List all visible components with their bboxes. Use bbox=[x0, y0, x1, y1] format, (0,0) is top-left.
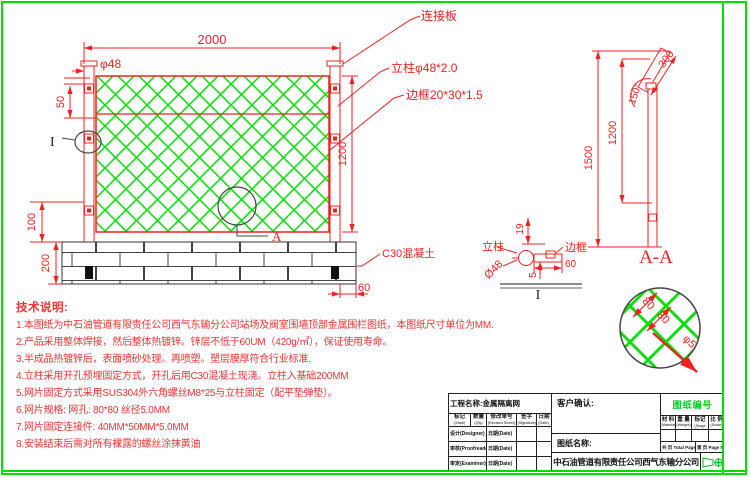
proofreader-label: 审核(Proofreader) bbox=[449, 442, 486, 456]
left-anchor bbox=[85, 266, 93, 279]
designer-date-label: 日期(Date) bbox=[487, 427, 516, 441]
dim-1200-front-label: 1200 bbox=[337, 142, 349, 166]
section-aa-label: A-A bbox=[639, 247, 673, 268]
side-view: 1500 1200 300 150° A-A bbox=[583, 48, 677, 268]
note-line: 5.网片固定方式采用SUS304外六角螺丝M8*25与立柱固定（配平垫弹垫）。 bbox=[16, 385, 476, 402]
page-no-label: 第 页 Page No. bbox=[696, 442, 724, 453]
left-post-cap bbox=[81, 61, 97, 66]
note-line: 6.网片规格: 网孔: 80*80 丝径5.0MM bbox=[16, 402, 476, 419]
detail-i-post-label: 立柱 bbox=[482, 239, 504, 253]
sheet-border-inner-bottom bbox=[1, 470, 747, 472]
front-view: 2000 φ48 50 100 200 bbox=[26, 8, 483, 298]
detail-i-5-label: 5 bbox=[528, 272, 539, 278]
label-post: 立柱φ48*2.0 bbox=[391, 60, 458, 75]
label-connector-plate: 连接板 bbox=[421, 8, 457, 23]
detail-i-frame-label: 边框 bbox=[565, 241, 587, 254]
dim-200-label: 200 bbox=[40, 254, 52, 272]
dim-1200-side-label: 1200 bbox=[607, 121, 619, 145]
right-anchor bbox=[331, 266, 339, 279]
title-block: 工程名称:金属隔离网 客户确认: 图纸编号 标记(Mark) 数量(Qty) 修… bbox=[448, 393, 723, 471]
sheet-border-inner-right bbox=[722, 1, 724, 475]
detail-i-dims bbox=[497, 218, 563, 279]
drawing-name-label: 图纸名称: bbox=[552, 434, 660, 449]
label-frame: 边框20*30*1.5 bbox=[406, 88, 483, 102]
project-name: 工程名称:金属隔离网 bbox=[449, 394, 551, 414]
designer-label: 设计(Designer) bbox=[449, 427, 486, 441]
mesh-panel bbox=[96, 76, 329, 232]
side-joint-plate bbox=[646, 83, 656, 89]
customer-confirm-label: 客户确认: bbox=[552, 394, 660, 409]
detail-i-section-label: I bbox=[536, 288, 541, 303]
examiner-label: 审定(Examiner) bbox=[449, 457, 486, 471]
detail-a-label: A bbox=[272, 229, 282, 244]
technical-notes: 技术说明: 1.本图纸为中石油管道有限责任公司西气东输分公司站场及阀室围墙顶部金… bbox=[16, 299, 476, 453]
detail-i-diameter-label: Ø48 bbox=[482, 258, 505, 281]
note-line: 8.安装结束后需对所有裸露的螺丝涂抹黄油 bbox=[16, 436, 476, 453]
mesh-detail: 80 80 φ5 bbox=[620, 288, 700, 372]
examiner-date-label: 日期(Date) bbox=[487, 457, 516, 471]
dim-50-label: 50 bbox=[55, 96, 67, 108]
dim-angle-label: 150° bbox=[627, 83, 644, 106]
dim-100 bbox=[30, 202, 84, 242]
side-post bbox=[648, 86, 657, 247]
total-pages-label: 共 页 Total Pages bbox=[661, 442, 695, 453]
detail-i-leader bbox=[62, 138, 75, 140]
side-dims bbox=[592, 51, 676, 247]
side-lower-plate bbox=[649, 214, 657, 221]
dim-phi48-label: φ48 bbox=[100, 57, 121, 71]
mesh-detail-circle bbox=[620, 288, 700, 368]
detail-i-label: I bbox=[50, 135, 55, 150]
detail-i-post-section bbox=[519, 251, 534, 266]
concrete-base bbox=[62, 242, 356, 284]
left-post bbox=[84, 66, 94, 266]
note-line: 4.立柱采用开孔预埋固定方式，开孔后用C30混凝土现浇。立柱入基础200MM bbox=[16, 368, 476, 385]
dim-1500-label: 1500 bbox=[583, 146, 595, 170]
dim-2000-label: 2000 bbox=[198, 32, 227, 47]
proofreader-date-label: 日期(Date) bbox=[487, 442, 516, 456]
drawing-number-label: 图纸编号 bbox=[661, 394, 724, 416]
dim-60-label: 60 bbox=[358, 282, 370, 294]
drawing-sheet: 2000 φ48 50 100 200 bbox=[0, 0, 750, 478]
note-line: 7.网片固定连接件: 40MM*50MM*5.0MM bbox=[16, 419, 476, 436]
right-post-cap bbox=[327, 61, 343, 66]
detail-i-view: 立柱 Ø48 19 边框 60 5 I bbox=[482, 218, 587, 303]
note-line: 3.半成品热镀锌后，表面喷砂处理。再喷塑。塑层膜厚符合行业标准. bbox=[16, 351, 476, 368]
callout-leaders bbox=[330, 16, 420, 266]
note-line: 1.本图纸为中石油管道有限责任公司西气东输分公司站场及阀室围墙顶部金属围栏图纸，… bbox=[16, 317, 476, 334]
detail-i-60-label: 60 bbox=[565, 259, 577, 270]
note-line: 2.产品采用整体焊接，然后整体热镀锌。锌层不低于60UM（420g/㎡），保证使… bbox=[16, 334, 476, 351]
dim-100-label: 100 bbox=[26, 213, 38, 231]
label-concrete: C30混凝土 bbox=[382, 246, 435, 260]
notes-title: 技术说明: bbox=[16, 299, 476, 315]
detail-i-19-label: 19 bbox=[515, 223, 526, 235]
